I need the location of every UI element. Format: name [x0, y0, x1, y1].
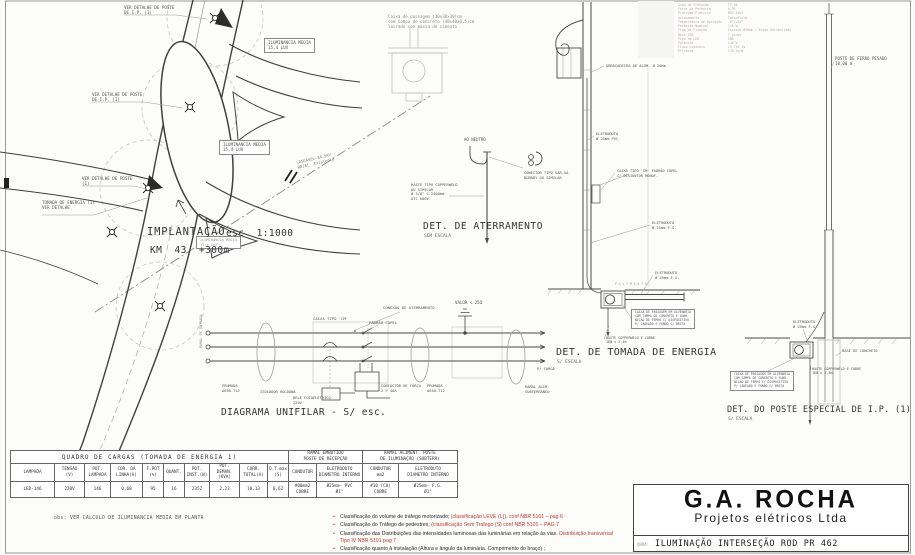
- annotation-base-concreto: BASE DE CONCRETO: [842, 349, 878, 354]
- note-bullet: •: [333, 546, 337, 553]
- plan-scale: esc 1:1000: [226, 228, 293, 239]
- table-header-cell: CORR. TOTAL(A): [240, 464, 268, 482]
- table-cell: #10 (CU) COBRE: [363, 482, 399, 498]
- annotation-ao-neutro: AO NEUTRO: [464, 137, 486, 142]
- loads-table: QUADRO DE CARGAS (TOMADA DE ENERGIA 1)RA…: [10, 450, 458, 498]
- annotation-valor-25-ohm: VALOR < 25Ω: [455, 300, 482, 305]
- classification-notes: •Classificação do volume de tráfego moto…: [333, 514, 621, 554]
- grounding-detail-title: DET. DE ATERRAMENTO: [423, 221, 543, 232]
- table-header-cell: QUADRO DE CARGAS (TOMADA DE ENERGIA 1): [11, 451, 289, 464]
- median-island: [148, 36, 246, 229]
- table-cell: 0,62: [268, 482, 289, 498]
- annotation-iluminancia-media-1: ILUMINANCIA MEDIA 15,4 LUX: [264, 38, 315, 53]
- luminaire-photo: [638, 1, 674, 58]
- obra-label: OBRA:: [637, 542, 649, 547]
- single-line-diagram-title: DIAGRAMA UNIFILAR - S/ esc.: [221, 407, 386, 418]
- project-title-row: OBRA: ILUMINAÇÃO INTERSEÇÃO ROD PR 462: [634, 535, 908, 552]
- table-cell: 10,13: [240, 482, 268, 498]
- table-header-cell: RAMAL ALIMENT. POSTE DE ILUMINAÇÃO (SUBT…: [363, 451, 458, 464]
- table-cell: 146: [85, 482, 111, 498]
- table-cell: 220V: [55, 482, 85, 498]
- company-logo: G.A. ROCHA: [634, 485, 908, 514]
- special-pole-detail-title: DET. DO POSTE ESPECIAL DE I.P. (1): [727, 405, 911, 415]
- note-bullet: •: [333, 531, 337, 546]
- annotation-caixa-cm-poste: CAIXA TIPO 'CM' PADRÃO COPEL C/ DISJUNTO…: [617, 169, 678, 178]
- table-cell: 0,68: [111, 482, 143, 498]
- note-line: •Classificação quanto à instalação (Altu…: [333, 546, 621, 553]
- annotation-caixa-alvenaria-1: CAIXA DE PASSAGEM EM ALVENARIA COM TAMPA…: [631, 309, 695, 329]
- annotation-iluminancia-media-2: ILUMINANCIA MEDIA 15,4 LUX: [219, 140, 270, 155]
- note-segment: (classificação Sem Trafego (S) conf NBR …: [431, 522, 559, 528]
- table-header-cell: POT. LAMPADA: [85, 464, 111, 482]
- note-segment: Classificação do Tráfego de pedestres;: [340, 522, 431, 528]
- title-block: G.A. ROCHA Projetos elétricos Ltda OBRA:…: [633, 484, 909, 552]
- annotation-poste-ferro-pesado: POSTE DE FERRO PESADO 10,00 m: [835, 56, 887, 66]
- luminaire-spec-list: Grau de Proteção IP-66Fator de Potência …: [678, 3, 798, 54]
- annotation-abracadeira: ABRAÇADEIRA DE ALUM. Ø 20mm: [606, 64, 666, 69]
- annotation-prumada-dir: PRUMADA A650-T12: [427, 384, 445, 393]
- annotation-caixa-tipo-cm: CAIXA TIPO 'CM': [313, 316, 348, 321]
- table-header-cell: QUANT.: [164, 464, 185, 482]
- annotation-tomada-energia-ref: TOMADA DE ENERGIA (1) VER DETALHE: [42, 200, 95, 211]
- fold-mark: [4, 178, 9, 188]
- annotation-conexao-aterramento: CONEXÃO DE ATERRAMENTO: [383, 305, 435, 310]
- annotation-rele-fotoeletrico: RELÉ FOTOELÉTRICO 220V: [293, 396, 331, 405]
- annotation-eletroduto-fg-3: ELETRODUTO Ø 25mm F.G.: [793, 320, 817, 329]
- annotation-eletroduto-fg-2: ELETRODUTO Ø 25mm F.G.: [655, 271, 679, 280]
- table-header-cell: POT. INST.(W): [185, 464, 210, 482]
- power-intake-detail-subtitle: S/ ESCALA: [557, 360, 581, 365]
- note-segment: Classificação do volume de tráfego motor…: [340, 514, 451, 520]
- annotation-p-carga: P/ CARGA: [537, 367, 555, 372]
- table-header-cell: F.POT (%): [143, 464, 164, 482]
- annotation-ver-detalhe-poste-1: VER DETALHE DE POSTE DE I.P. (1): [124, 5, 174, 16]
- grounding-detail-subtitle: SEM ESCALA: [424, 234, 451, 239]
- table-header-cell: POT. DEMAN.(KVA): [210, 464, 240, 482]
- table-header-cell: CONDUTOR mm2: [363, 464, 399, 482]
- junction-box-drawing: [388, 28, 448, 101]
- plan-title: IMPLANTAÇÃO: [147, 226, 225, 238]
- note-line: •Classificação das Distribuições das int…: [333, 531, 621, 546]
- table-header-cell: ELETRODUTO DIAMETRO INTERNO: [399, 464, 458, 482]
- annotation-haste-tomada: HASTE COPPERWELD E COBRE 16Ø x 2,4m: [606, 336, 655, 345]
- annotation-ramal-entrada: RAMAL DE ENTRADA: [199, 314, 203, 348]
- note-segment: (classificação LEVE (L)), conf NBR 5101 …: [451, 514, 563, 520]
- annotation-ver-detalhe-poste-3: VER DETALHE DE POSTE (1): [82, 176, 132, 187]
- note-bullet: •: [333, 514, 337, 521]
- annotation-contactor-forca: CONTACTOR DE FORÇA 2 P 40A: [381, 384, 421, 393]
- project-title: ILUMINAÇÃO INTERSEÇÃO ROD PR 462: [655, 539, 838, 549]
- power-line-345kv: [95, 96, 430, 312]
- drawing-sheet: Grau de Proteção IP-66Fator de Potência …: [0, 0, 915, 555]
- annotation-isolador-roldana: ISOLADOR ROLDANA: [260, 390, 296, 395]
- table-cell: 2,23: [210, 482, 240, 498]
- table-header-cell: Q.T.máx (S): [268, 464, 289, 482]
- table-cell: 95: [143, 482, 164, 498]
- table-header-cell: CONDUTOR: [289, 464, 317, 482]
- logo-row: G.A. ROCHA Projetos elétricos Ltda: [634, 486, 908, 535]
- annotation-ver-detalhe-poste-2: VER DETALHE DE POSTE DE I.P. (1): [92, 92, 142, 103]
- power-intake-detail-title: DET. DE TOMADA DE ENERGIA: [556, 347, 717, 358]
- table-header-cell: COR. DA LINHA(A): [111, 464, 143, 482]
- annotation-padrao-copel: PADRÃO COPEL: [369, 320, 397, 325]
- annotation-prumada-esq: PRUMADA A650-T12: [222, 384, 240, 393]
- annotation-pavimento: P A V I M E N T O: [615, 283, 647, 287]
- note-bullet: •: [333, 522, 337, 529]
- table-cell: LED-146: [11, 482, 55, 498]
- table-cell: #00mm2 COBRE: [289, 482, 317, 498]
- annotation-conector-label: CONECTOR TIPO GAR-GA BURNDY OU SIMILAR: [524, 171, 568, 180]
- table-header-cell: TENSÃO (V): [55, 464, 85, 482]
- table-header-cell: RAMAL EMBUTIDO POSTE DE RECEPÇÃO: [289, 451, 363, 464]
- table-header-cell: LAMPADA: [11, 464, 55, 482]
- annotation-caixa-passagem-nota: Caixa de passagem (30x30x30)cm com tampa…: [388, 14, 474, 30]
- table-cell: 16: [164, 482, 185, 498]
- table-cell: Ø25mm- F.G. Ø1": [399, 482, 458, 498]
- special-pole-detail-subtitle: S/ ESCALA: [728, 417, 752, 422]
- annotation-eletroduto-pvc: ELETRODUTO Ø 25mm PVC: [596, 132, 618, 141]
- table-cell: Ø25mm- PVC Ø1": [317, 482, 363, 498]
- luminaire-spec-line: Tipo de Fixação Encaixe Ø48mm / Braço Ga…: [678, 28, 798, 32]
- note-segment: Classificação das Distribuições das inte…: [340, 531, 559, 537]
- plan-km: KM 43 +300m: [150, 245, 230, 256]
- annotation-eletroduto-fg-1: ELETRODUTO Ø 25mm F.G.: [652, 221, 676, 230]
- annotation-caixa-alvenaria-2: CAIXA DE PASSAGEM EM ALVENARIA COM TAMPA…: [730, 371, 794, 391]
- annotation-haste-poste: HASTE COPPERWELD E COBRE 16Ø x 2,4m: [812, 367, 861, 376]
- annotation-ramal-subterraneo: RAMAL ALIM. SUBTERRÂNEO: [525, 385, 549, 394]
- annotation-haste-label: HASTE TIPO COPPERWELD OU SIMILAR Ø 5/8" …: [411, 183, 458, 202]
- note-line: •Classificação do Tráfego de pedestres; …: [333, 522, 621, 529]
- luminaire-spec-line: Eficácia 135 lm/W: [678, 49, 798, 53]
- observation-note: obs: VER CALCULO DE ILUMINANCIA MEDIA EM…: [54, 516, 204, 521]
- table-cell: 2352: [185, 482, 210, 498]
- note-line: •Classificação do volume de tráfego moto…: [333, 514, 621, 521]
- note-segment: Classificação quanto à instalação (Altur…: [340, 546, 545, 552]
- table-header-cell: ELETRODUTO DIAMETRO INTERNO: [317, 464, 363, 482]
